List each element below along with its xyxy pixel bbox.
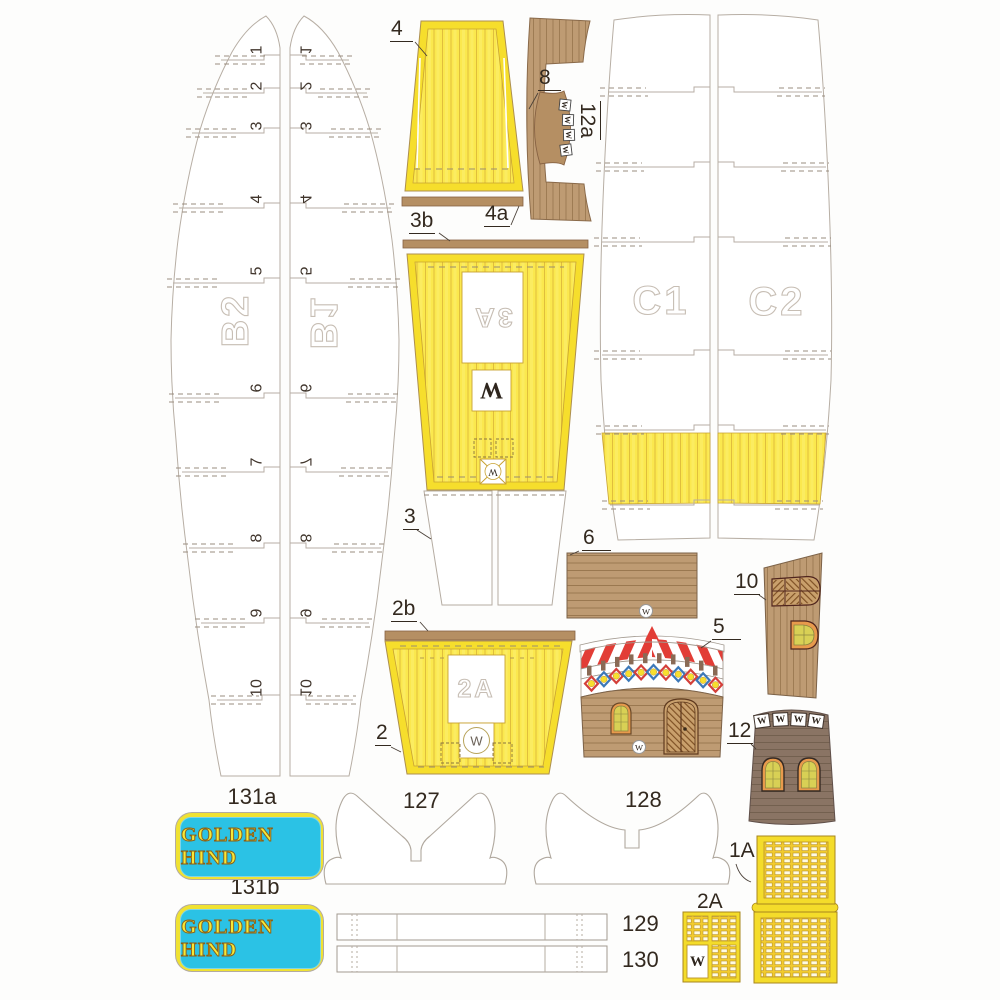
cabin-window <box>611 703 631 734</box>
b1-seg-8: 8 <box>297 533 314 542</box>
part-5-cabin: W <box>580 626 724 757</box>
deck2a-mast-hole: W <box>459 723 494 758</box>
strip-part-130 <box>337 946 607 972</box>
part-12a: W W W W <box>535 91 575 165</box>
deck2a-w-label: W <box>470 734 483 749</box>
label-part-10: 10 <box>734 571 760 595</box>
label-part-8: 8 <box>538 67 561 91</box>
part-3 <box>424 491 566 605</box>
nameplate-131b-text: GOLDEN HIND <box>181 916 320 962</box>
label-part-2b: 2b <box>391 598 417 622</box>
grating-part-1a <box>752 836 838 983</box>
b2-seg-5: 5 <box>249 266 266 275</box>
c2-part-id: C2 <box>748 280 805 324</box>
label-part-131a: 131a <box>207 786 297 808</box>
label-part-3: 3 <box>403 506 419 530</box>
label-part-1a: 1A <box>729 840 755 861</box>
label-part-4: 4 <box>390 18 413 42</box>
deck3a-hole-label: 3A <box>472 303 513 333</box>
label-part-131b: 131b <box>210 876 300 898</box>
b2-seg-2: 2 <box>249 81 266 90</box>
b2-seg-7: 7 <box>249 457 266 466</box>
b2-seg-6: 6 <box>249 383 266 392</box>
hull-template-b1: 1 2 3 4 5 6 7 8 9 10 B1 <box>290 16 402 776</box>
c1-part-id: C1 <box>632 279 689 323</box>
label-part-12: 12 <box>727 720 753 744</box>
tower-arch-window-left <box>762 758 784 791</box>
b2-seg-8: 8 <box>249 533 266 542</box>
hull-template-c2: C2 <box>718 15 832 540</box>
b1-seg-5: 5 <box>297 266 314 275</box>
deck-part-4 <box>405 21 523 191</box>
hull-template-c1: C1 <box>594 15 710 540</box>
deck3a-xbox-w: W <box>488 466 498 477</box>
tower-arch-window-right <box>798 758 820 791</box>
p6-w-mark: W <box>642 607 650 617</box>
b1-seg-4: 4 <box>297 194 314 203</box>
b1-seg-6: 6 <box>297 383 314 392</box>
b2-seg-9: 9 <box>249 608 266 617</box>
label-part-3b: 3b <box>409 210 435 234</box>
b1-seg-1: 1 <box>297 45 314 54</box>
p12a-window-2: W <box>563 116 572 124</box>
grating-part-2a: W <box>683 912 740 982</box>
nameplate-131a: GOLDEN HIND <box>176 813 323 879</box>
b1-seg-3: 3 <box>297 121 314 130</box>
awning-peak <box>645 626 659 640</box>
b1-part-id: B1 <box>302 295 344 350</box>
label-part-6: 6 <box>582 527 611 551</box>
label-part-130: 130 <box>622 949 659 971</box>
b2-seg-4: 4 <box>249 194 266 203</box>
deck3a-w-label: W <box>480 378 503 403</box>
p10-window <box>791 621 818 649</box>
tower-window-1: W <box>757 716 768 727</box>
tower-window-4: W <box>811 716 822 727</box>
tower-window-3: W <box>793 715 804 726</box>
part-6: W <box>567 553 697 618</box>
c1-yellow-band <box>602 433 710 504</box>
nameplate-131a-text: GOLDEN HIND <box>181 824 320 870</box>
papercraft-sheet: 1 2 3 4 5 6 7 8 9 10 B2 1 2 3 4 5 <box>0 0 1000 1000</box>
p12a-window-1: W <box>560 100 570 109</box>
cabin-door <box>664 699 698 754</box>
tower-window-2: W <box>776 715 787 726</box>
b2-part-id: B2 <box>215 293 257 348</box>
b1-seg-10: 10 <box>297 679 314 697</box>
label-part-128: 128 <box>625 789 662 811</box>
b2-seg-3: 3 <box>249 121 266 130</box>
label-part-127: 127 <box>403 790 440 812</box>
part-12-tower: W W W W <box>749 710 835 825</box>
label-part-4a: 4a <box>484 203 510 227</box>
deck3a-mast-xbox: W <box>480 459 506 484</box>
p10-gunport-lid <box>772 577 820 607</box>
b1-seg-9: 9 <box>297 608 314 617</box>
label-part-2: 2 <box>375 722 391 746</box>
b1-seg-2: 2 <box>297 81 314 90</box>
grate2a-w-mark: W <box>690 954 705 970</box>
b2-seg-10: 10 <box>249 679 266 697</box>
part-10 <box>764 553 822 698</box>
deck-part-3a: 3A W W <box>407 254 584 490</box>
label-part-12a: 12a <box>577 101 601 140</box>
strip-part-129 <box>337 914 607 940</box>
p12a-window-3: W <box>564 131 573 139</box>
strip-part-3b <box>403 240 588 248</box>
deck2a-hole-label: 2A <box>458 675 496 703</box>
label-part-129: 129 <box>622 913 659 935</box>
c2-yellow-band <box>718 433 826 504</box>
deck-part-2a: 2A W <box>385 641 572 774</box>
p5-w-mark: W <box>635 743 643 753</box>
nameplate-131b: GOLDEN HIND <box>176 905 323 971</box>
sheet-artwork: 1 2 3 4 5 6 7 8 9 10 B2 1 2 3 4 5 <box>0 0 1000 1000</box>
label-part-5: 5 <box>712 616 741 640</box>
b2-seg-1: 1 <box>249 45 266 54</box>
b1-seg-7: 7 <box>297 457 314 466</box>
p12a-window-4: W <box>561 146 571 155</box>
label-part-2a-grate: 2A <box>697 891 723 912</box>
hull-template-b2: 1 2 3 4 5 6 7 8 9 10 B2 <box>167 16 280 776</box>
strip-part-2b <box>385 631 575 640</box>
